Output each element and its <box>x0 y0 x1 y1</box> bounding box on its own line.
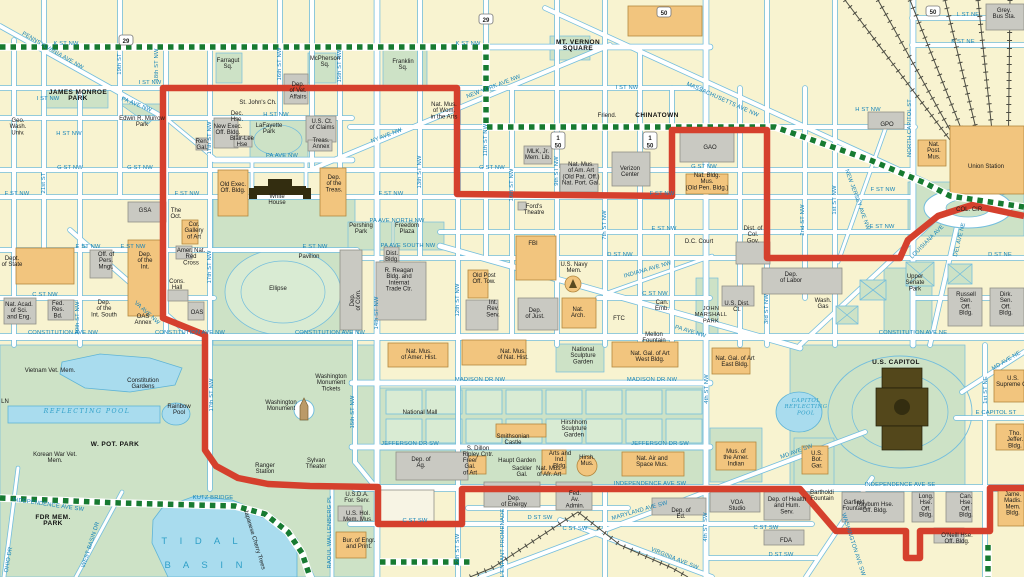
map-label: HirshhornSculptureGarden <box>561 420 587 438</box>
map-label: F ST NW <box>871 187 896 193</box>
map-label: LN <box>1 399 9 405</box>
map-label: H ST NW <box>263 112 289 118</box>
map-label: Dep.of Vet.Affairs <box>289 82 306 100</box>
map-label: O'Neill Hse.Off. Bldg. <box>941 533 973 545</box>
map-label: 9th ST NW <box>554 156 560 186</box>
map-label: 18th ST NW <box>154 48 160 81</box>
map-label: MLK, Jr.Mem. Lib. <box>525 149 552 161</box>
map-label: PA AVE NW <box>266 153 298 159</box>
map-label: 2nd ST NW <box>800 204 806 236</box>
map-label: GAO <box>703 145 717 151</box>
map-label: TheOct. <box>170 208 181 220</box>
route-shield: 29 <box>479 14 493 24</box>
map-label: G ST NW <box>691 164 717 170</box>
mall-panel <box>506 390 542 414</box>
map-label: Can.Emb. <box>655 300 669 312</box>
map-label: L'ENFANT PROMENADE <box>500 509 506 577</box>
map-label: E ST NW <box>302 244 327 250</box>
map-label: F ST NW <box>379 191 404 197</box>
building <box>16 248 74 284</box>
map-label: 16th ST NW <box>277 47 283 80</box>
map-label: Dep.of theTreas. <box>326 175 343 193</box>
map-label: C ST SW <box>562 526 587 532</box>
route-shield: 50 <box>657 7 671 17</box>
map-label: 4th ST NW <box>704 374 710 404</box>
map-label: 12th ST SW <box>455 533 461 566</box>
map-label: WashingtonMonument <box>265 400 296 412</box>
map-label: CONSTITUTION AVE NW <box>28 330 98 336</box>
map-label: CONSTITUTION AVE NE <box>879 330 947 336</box>
map-label: 20th ST NW <box>75 301 81 334</box>
map-label: 15th ST NW <box>350 395 356 428</box>
map-label: Old Exec.Off. Bldg. <box>220 182 246 194</box>
building <box>168 290 188 301</box>
map-label: New Exec.Off. Bldg. <box>214 124 243 136</box>
map-label: Haupt Garden <box>498 458 536 464</box>
map-label: Tho.Jeffer.Bldg. <box>1007 431 1024 449</box>
map-label: Ren.Gal. <box>196 139 209 151</box>
map-label: U.S. Ct.of Claims <box>309 119 334 131</box>
map-label: Nat. Gal. of ArtWest Bldg. <box>630 351 670 363</box>
map-label: Nat. Mus.of Amer. Hist. <box>401 349 437 361</box>
map-label: 12th ST NW <box>455 283 461 316</box>
map-label: ConstitutionGardens <box>127 378 159 390</box>
mall-panel <box>546 390 582 414</box>
map-label: D ST NE <box>988 252 1012 258</box>
map-label: INDEPENDENCE AVE SW <box>614 481 687 487</box>
building <box>950 126 1024 194</box>
map-label: U.S. CAPITOL <box>872 359 920 366</box>
ellipse-lawn <box>225 249 341 335</box>
mall-panel <box>586 419 622 443</box>
map-label: Ellipse <box>269 286 287 292</box>
map-label: I ST NW <box>37 96 60 102</box>
map-label: GPO <box>880 122 894 128</box>
map-label: Old PostOff. Tow. <box>472 273 495 285</box>
map-label: SylvanTheater <box>306 458 327 470</box>
map-label: Dec.Hse. <box>231 111 244 123</box>
map-label: Nat. Air andSpace Mus. <box>636 456 668 468</box>
map-label: E ST NW <box>651 226 676 232</box>
map-label: 13th ST NW <box>417 155 423 188</box>
svg-text:29: 29 <box>123 39 130 45</box>
map-label: RAOUL WALLENBERG PL <box>327 495 333 569</box>
map-label: E ST NW <box>75 244 100 250</box>
map-label: 14th ST NW <box>374 296 380 329</box>
map-label: C ST NW <box>32 292 58 298</box>
map-label: Dist.Bldg. <box>385 251 399 263</box>
map-label: KUTZ BRIDGE <box>193 495 234 501</box>
map-label: K ST NW <box>455 41 480 47</box>
navy-memorial-icon <box>565 276 581 292</box>
map-label: CONSTITUTION AVE NW <box>295 330 365 336</box>
map-label: CHINATOWN <box>635 112 678 119</box>
map-label: G ST NW <box>127 165 153 171</box>
map-label: K ST NE <box>951 39 975 45</box>
map-label: OAS <box>191 310 204 316</box>
map-label: I ST NW <box>616 85 639 91</box>
map-label: MADISON DR NW <box>627 377 678 383</box>
map-label: T I D A L <box>161 536 242 547</box>
map-label: 17th ST NW <box>209 378 215 411</box>
map-label: Jame.Madis.Mem.Bldg. <box>1004 492 1022 517</box>
svg-text:50: 50 <box>555 144 562 150</box>
map-label: H ST NW <box>855 107 881 113</box>
map-label: INDEPENDENCE AVE SE <box>865 482 936 488</box>
map-label: Vietnam Vet. Mem. <box>25 368 76 374</box>
map-label: S. DillonRipley Cntr. <box>462 446 493 458</box>
map-label: JEFFERSON DR SW <box>381 441 439 447</box>
map-label: COL. CIR. <box>956 207 984 213</box>
map-label: 4th ST SW <box>703 512 709 542</box>
map-label: Bur. of Engr.and Print. <box>342 538 375 550</box>
map-label: FDA <box>780 538 792 544</box>
svg-text:50: 50 <box>661 11 668 17</box>
map-label: C ST SW <box>402 518 427 524</box>
map-label: OASAnnex <box>134 314 151 326</box>
map-label: Nat.Arch. <box>571 307 585 319</box>
map-label: E CAPITOL ST <box>976 410 1017 416</box>
map-label: D ST SW <box>768 552 793 558</box>
map-label: F ST NW <box>175 191 200 197</box>
svg-text:50: 50 <box>930 10 937 16</box>
svg-text:50: 50 <box>647 144 654 150</box>
map-label: C ST SW <box>753 525 778 531</box>
map-label: 7th ST NW <box>602 210 608 240</box>
map-label: H ST NW <box>56 131 82 137</box>
map-label: FTC <box>613 316 625 322</box>
map-label: Hirsh.Mus. <box>579 455 595 467</box>
mall-panel <box>626 419 662 443</box>
map-label: 3rd ST NW <box>764 294 770 324</box>
map-label: U.S.D.A.For. Serv. <box>344 492 370 504</box>
map-label: National Mall <box>403 410 438 416</box>
map-label: 17th ST NW <box>207 250 213 283</box>
map-label: NationalSculptureGarden <box>570 347 596 365</box>
route-shield: 50 <box>926 6 940 16</box>
map-label: 21st ST <box>41 172 47 193</box>
map-label: REFLECTING POOL <box>43 408 131 415</box>
route-shield: 150 <box>551 132 565 150</box>
map-label: F ST NW <box>5 191 30 197</box>
map-label: 15th ST NW <box>337 49 343 82</box>
map-label: FreerGal.of Art <box>463 458 478 476</box>
map-label: F ST NW <box>650 191 675 197</box>
map-label: 10th ST NW <box>509 168 515 201</box>
mall-panel <box>586 390 622 414</box>
mall-panel <box>666 390 702 414</box>
map-label: 17th ST NW <box>207 121 213 154</box>
map-label: JEFFERSON DR SW <box>631 441 689 447</box>
map-label: 1st ST NW <box>832 185 838 215</box>
map-label: Treas.Annex <box>312 138 329 150</box>
map-label: VerizonCenter <box>620 166 640 178</box>
map-label: G ST NW <box>479 165 505 171</box>
map-label: E ST NW <box>869 224 894 230</box>
mall-panel <box>386 419 422 443</box>
map-label: Union Station <box>968 164 1004 170</box>
mall-panel <box>666 419 702 443</box>
map-label: MellonFountain <box>642 332 665 344</box>
dc-tourist-map: K ST NWK ST NWL ST NEK ST NEI ST NWI ST … <box>0 0 1024 577</box>
map-label: Nat. Mus.of Wom.in the Arts <box>431 102 458 120</box>
map-label: Friend. <box>598 113 617 119</box>
map-label: RangerStation <box>255 463 275 475</box>
map-label: 1st ST NE <box>983 376 989 404</box>
map-label: E ST NW <box>120 244 145 250</box>
map-label: Nat. Mus.of Nat. Hist. <box>497 349 529 361</box>
map-label: Geo.Wash.Univ. <box>10 118 27 136</box>
map-label: CONSTITUTION AVE NW <box>155 330 225 336</box>
map-label: R. ReaganBldg. andInternatTrade Ctr. <box>385 268 414 293</box>
map-label: GSA <box>139 208 152 214</box>
map-label: D ST NW <box>607 252 633 258</box>
map-label: NORTH CAPITOL ST <box>907 99 913 157</box>
map-label: Off. ofPers.Mngt. <box>98 252 115 270</box>
map-label: C ST NW <box>642 291 668 297</box>
map-label: St. John's Ch. <box>239 100 276 106</box>
map-label: PA AVE SOUTH NW <box>381 243 436 249</box>
map-label: Pavilion <box>298 254 319 260</box>
map-label: L ST NE <box>957 12 980 18</box>
map-label: BartholdiFountain <box>810 490 834 502</box>
map-label: W. POT. PARK <box>91 441 139 448</box>
map-label: 11th ST NW <box>483 123 489 156</box>
svg-text:29: 29 <box>483 18 490 24</box>
map-label: 19th ST <box>117 53 123 75</box>
map-label: K ST NW <box>53 41 78 47</box>
map-label: FBI <box>528 241 538 247</box>
map-label: Ford'sTheatre <box>524 204 545 216</box>
route-shield: 150 <box>643 132 657 150</box>
map-label: B A S I N <box>164 560 247 571</box>
building <box>396 452 468 480</box>
map-label: D ST SW <box>527 515 552 521</box>
map-label: Nat.Post.Mus. <box>927 142 941 160</box>
map-canvas: K ST NWK ST NWL ST NEK ST NEI ST NWI ST … <box>0 0 1024 577</box>
mall-panel <box>626 390 662 414</box>
map-label: U.S. Hol.Mem. Mus. <box>343 511 373 523</box>
map-label: MADISON DR NW <box>455 377 506 383</box>
map-label: WhiteHouse <box>268 194 286 206</box>
map-label: U.S.Bot.Gar. <box>811 451 823 469</box>
route-shield: 29 <box>119 35 133 45</box>
mall-panel <box>466 390 502 414</box>
map-label: G ST NW <box>57 165 83 171</box>
us-capitol-icon <box>876 368 928 450</box>
map-label: D.C. Court <box>685 239 714 245</box>
